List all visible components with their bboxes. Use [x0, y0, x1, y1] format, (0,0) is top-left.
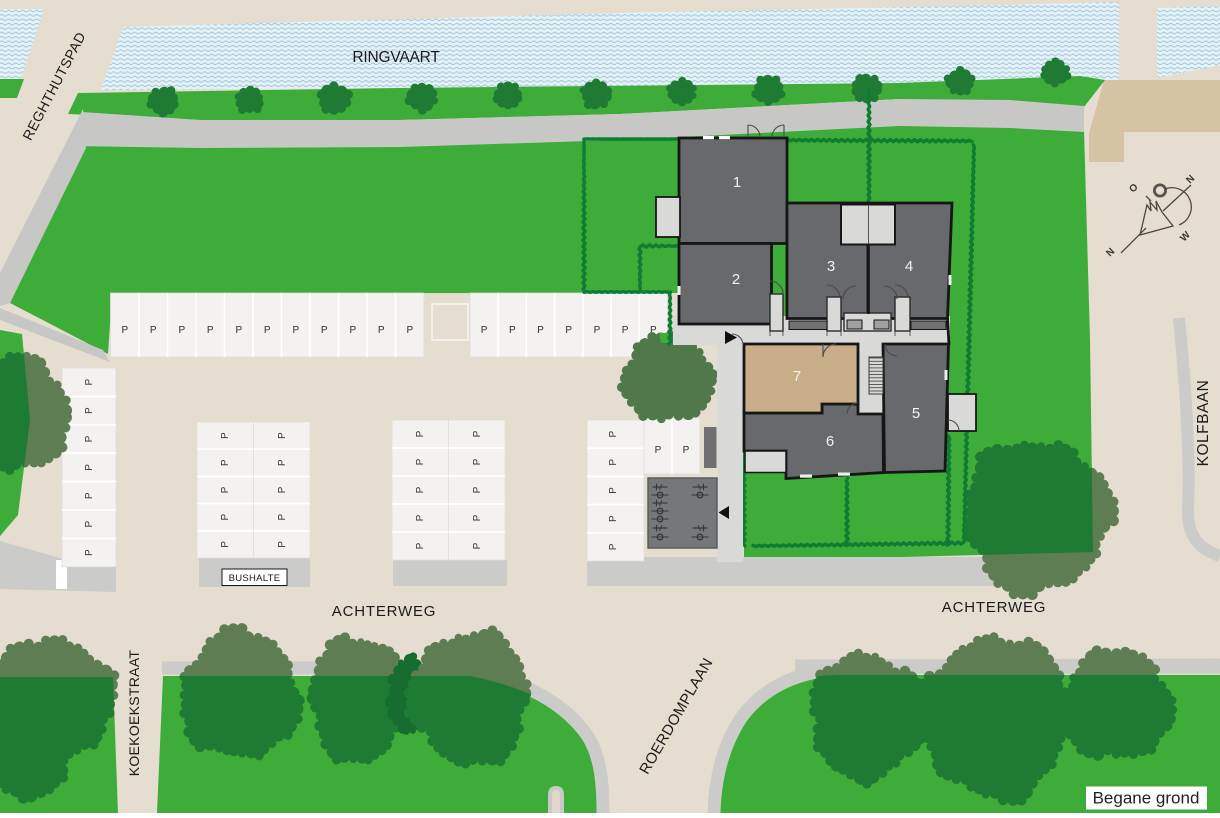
svg-text:P: P: [608, 515, 619, 522]
svg-text:P: P: [683, 445, 690, 456]
svg-text:P: P: [472, 430, 483, 437]
svg-text:P: P: [84, 407, 95, 414]
svg-text:P: P: [406, 325, 413, 336]
svg-text:P: P: [622, 325, 629, 336]
svg-text:P: P: [509, 325, 516, 336]
svg-text:5: 5: [912, 405, 920, 422]
svg-text:P: P: [277, 541, 288, 548]
svg-text:P: P: [264, 325, 271, 336]
svg-text:BUSHALTE: BUSHALTE: [229, 573, 281, 584]
svg-text:P: P: [472, 542, 483, 549]
svg-text:P: P: [220, 459, 231, 466]
svg-text:P: P: [537, 325, 544, 336]
svg-text:P: P: [321, 325, 328, 336]
svg-text:KOLFBAAN: KOLFBAAN: [1195, 380, 1212, 467]
svg-text:P: P: [220, 514, 231, 521]
svg-text:P: P: [84, 492, 95, 499]
svg-text:P: P: [415, 514, 426, 521]
svg-text:P: P: [594, 325, 601, 336]
svg-text:2: 2: [732, 271, 740, 288]
svg-text:P: P: [415, 486, 426, 493]
svg-text:7: 7: [793, 368, 801, 385]
svg-text:P: P: [565, 325, 572, 336]
svg-text:P: P: [178, 325, 185, 336]
svg-text:P: P: [472, 458, 483, 465]
svg-text:P: P: [415, 430, 426, 437]
svg-text:P: P: [150, 325, 157, 336]
svg-text:P: P: [481, 325, 488, 336]
svg-text:ACHTERWEG: ACHTERWEG: [332, 603, 436, 620]
svg-text:P: P: [277, 486, 288, 493]
svg-text:6: 6: [826, 433, 834, 450]
svg-text:P: P: [235, 325, 242, 336]
svg-text:KOEKOEKSTRAAT: KOEKOEKSTRAAT: [126, 650, 142, 777]
svg-text:P: P: [655, 445, 662, 456]
svg-text:P: P: [292, 325, 299, 336]
svg-text:RINGVAART: RINGVAART: [352, 49, 440, 66]
svg-text:P: P: [84, 379, 95, 386]
svg-text:Begane grond: Begane grond: [1093, 789, 1200, 808]
svg-text:P: P: [277, 432, 288, 439]
svg-text:P: P: [608, 459, 619, 466]
svg-text:P: P: [84, 464, 95, 471]
svg-text:P: P: [472, 514, 483, 521]
svg-text:P: P: [84, 549, 95, 556]
svg-text:P: P: [608, 430, 619, 437]
svg-text:P: P: [608, 487, 619, 494]
svg-text:P: P: [415, 458, 426, 465]
svg-text:P: P: [84, 521, 95, 528]
svg-text:ACHTERWEG: ACHTERWEG: [942, 599, 1046, 616]
svg-text:P: P: [220, 541, 231, 548]
svg-text:4: 4: [905, 258, 913, 275]
svg-text:P: P: [415, 542, 426, 549]
svg-text:P: P: [277, 459, 288, 466]
svg-text:P: P: [121, 325, 128, 336]
svg-text:P: P: [220, 486, 231, 493]
svg-text:P: P: [277, 514, 288, 521]
svg-text:P: P: [207, 325, 214, 336]
svg-text:P: P: [349, 325, 356, 336]
svg-text:P: P: [84, 435, 95, 442]
svg-text:P: P: [220, 432, 231, 439]
svg-text:3: 3: [827, 258, 835, 275]
svg-text:P: P: [472, 486, 483, 493]
svg-text:P: P: [378, 325, 385, 336]
svg-text:P: P: [608, 543, 619, 550]
svg-text:1: 1: [733, 174, 741, 191]
